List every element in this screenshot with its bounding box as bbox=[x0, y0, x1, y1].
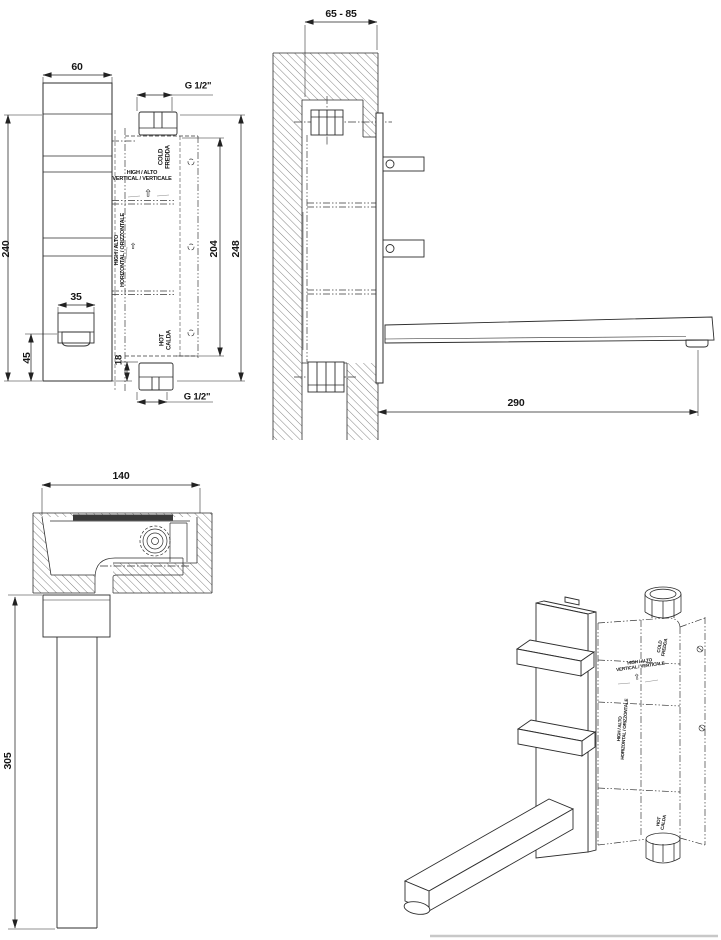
front-view-linework bbox=[4, 75, 245, 402]
isometric-view-linework bbox=[403, 587, 718, 936]
technical-drawing-page: 60 G 1/2" 240 COLD FREDDA HIGH / ALTO VE… bbox=[0, 0, 721, 940]
side-view-linework bbox=[273, 22, 714, 440]
plan-view-linework bbox=[8, 485, 212, 929]
drawing-canvas bbox=[0, 0, 721, 940]
